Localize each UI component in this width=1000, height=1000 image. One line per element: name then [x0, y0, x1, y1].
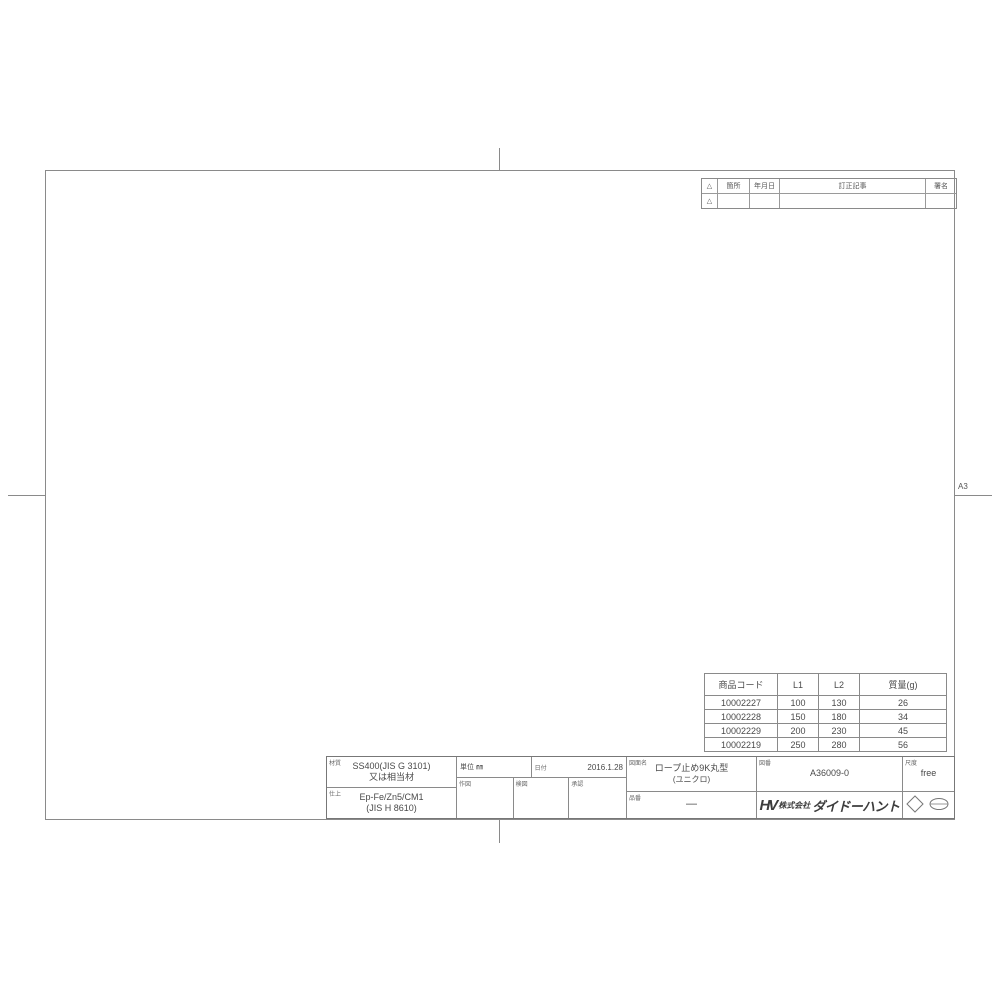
company-name: ダイドーハント [812, 796, 899, 815]
approved-cell: 承認 [569, 778, 626, 818]
col-header-product-code: 商品コード [705, 674, 778, 696]
drawing-name-line1: ロープ止め9K丸型 [655, 763, 728, 774]
parts-header-row: 商品コード L1 L2 質量(g) [705, 674, 947, 696]
title-block: 材質 SS400(JIS G 3101) 又は相当材 仕上 Ep-Fe/Zn5/… [326, 756, 955, 819]
cell-l1: 150 [778, 710, 819, 724]
cell-mass: 56 [860, 738, 947, 752]
checked-label: 検図 [516, 779, 528, 788]
sheet-border: △ 箇所 年月日 訂正記事 署名 △ 商品コード L1 L2 質量(g) [45, 170, 955, 820]
cell-l1: 100 [778, 696, 819, 710]
cell-l2: 130 [819, 696, 860, 710]
finish-value-line1: Ep-Fe/Zn5/CM1 [359, 792, 423, 803]
revision-header-row: △ 箇所 年月日 訂正記事 署名 [702, 179, 956, 193]
drawing-name-label: 図面名 [629, 758, 647, 767]
scale-value: free [921, 768, 937, 779]
part-number-cell: 品番 — [627, 792, 756, 818]
part-number-value: — [686, 798, 697, 812]
drawn-label: 作図 [459, 779, 471, 788]
parts-table: 商品コード L1 L2 質量(g) 10002227 100 130 26 10… [704, 673, 947, 752]
company-prefix: 株式会社 [778, 800, 810, 811]
drawing-name-section: 図面名 ロープ止め9K丸型 (ユニクロ) 品番 — [627, 757, 757, 818]
cell-l1: 250 [778, 738, 819, 752]
cell-l1: 200 [778, 724, 819, 738]
revision-sign-header: 署名 [926, 179, 956, 193]
drawing-name-cell: 図面名 ロープ止め9K丸型 (ユニクロ) [627, 757, 756, 792]
cell-l2: 280 [819, 738, 860, 752]
approval-section: 単位 ㎜ 日付 2016.1.28 作図 検図 承認 [457, 757, 627, 818]
drawing-page: L2 L1 (8) 6 φ17 30 [0, 0, 1000, 1000]
finish-value-line2: (JIS H 8610) [366, 803, 417, 814]
col-header-mass: 質量(g) [860, 674, 947, 696]
revision-note-header: 訂正記事 [780, 179, 926, 193]
material-label: 材質 [329, 758, 341, 767]
table-row: 10002227 100 130 26 [705, 696, 947, 710]
drawing-number-label: 図番 [759, 758, 771, 767]
scale-label: 尺度 [905, 758, 917, 767]
projection-symbol-cell [903, 792, 954, 818]
material-cell: 材質 SS400(JIS G 3101) 又は相当材 [327, 757, 456, 788]
drawing-number-value: A36009-0 [810, 768, 849, 779]
table-row: 10002229 200 230 45 [705, 724, 947, 738]
revision-place-header: 箇所 [718, 179, 750, 193]
col-header-l2: L2 [819, 674, 860, 696]
cell-mass: 45 [860, 724, 947, 738]
cell-code: 10002227 [705, 696, 778, 710]
date-cell: 日付 2016.1.28 [532, 757, 626, 777]
material-finish-section: 材質 SS400(JIS G 3101) 又は相当材 仕上 Ep-Fe/Zn5/… [327, 757, 457, 818]
company-cell: HV 株式会社 ダイドーハント [757, 792, 902, 818]
scale-section: 尺度 free [903, 757, 954, 818]
cell-code: 10002219 [705, 738, 778, 752]
date-label: 日付 [535, 763, 547, 772]
part-number-label: 品番 [629, 793, 641, 802]
drawn-cell: 作図 [457, 778, 514, 818]
col-header-l1: L1 [778, 674, 819, 696]
revision-date-header: 年月日 [750, 179, 780, 193]
cell-mass: 34 [860, 710, 947, 724]
revision-table: △ 箇所 年月日 訂正記事 署名 △ [701, 178, 957, 209]
table-row: 10002219 250 280 56 [705, 738, 947, 752]
revision-mark-header: △ [702, 179, 718, 193]
third-angle-projection-icon [903, 792, 952, 816]
revision-row-mark: △ [702, 194, 718, 208]
drawing-number-section: 図番 A36009-0 HV 株式会社 ダイドーハント [757, 757, 903, 818]
sheet-size-label: A3 [958, 482, 968, 491]
checked-cell: 検図 [514, 778, 570, 818]
scale-cell: 尺度 free [903, 757, 954, 792]
unit-label: 単位 ㎜ [460, 762, 483, 772]
approved-label: 承認 [571, 779, 583, 788]
finish-label: 仕上 [329, 789, 341, 798]
cell-l2: 180 [819, 710, 860, 724]
material-value-line2: 又は相当材 [369, 772, 414, 783]
material-value-line1: SS400(JIS G 3101) [352, 761, 430, 772]
date-value: 2016.1.28 [587, 763, 623, 772]
company-logo: HV [759, 797, 776, 814]
drawing-name-line2: (ユニクロ) [673, 775, 710, 785]
cell-mass: 26 [860, 696, 947, 710]
cell-l2: 230 [819, 724, 860, 738]
cell-code: 10002228 [705, 710, 778, 724]
cell-code: 10002229 [705, 724, 778, 738]
drawing-number-cell: 図番 A36009-0 [757, 757, 902, 792]
finish-cell: 仕上 Ep-Fe/Zn5/CM1 (JIS H 8610) [327, 788, 456, 818]
revision-empty-row: △ [702, 193, 956, 208]
unit-cell: 単位 ㎜ [457, 757, 532, 777]
table-row: 10002228 150 180 34 [705, 710, 947, 724]
